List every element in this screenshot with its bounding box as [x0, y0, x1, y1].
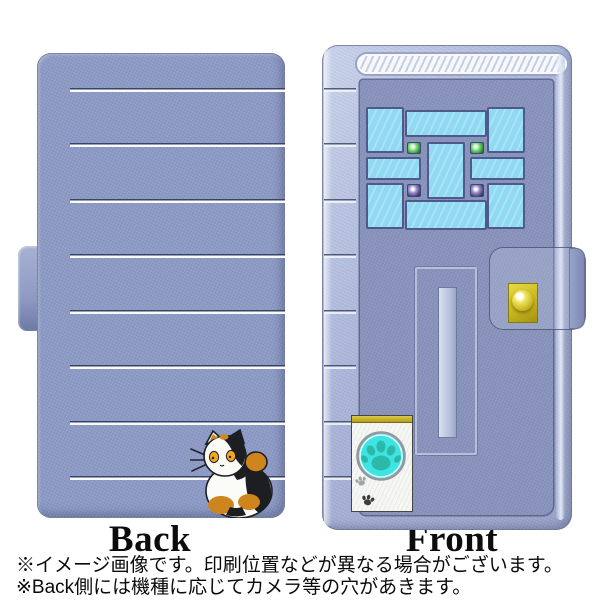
- stripe-line: [70, 365, 285, 369]
- stripe-line: [70, 143, 285, 147]
- paw-steps-icon: [359, 491, 378, 510]
- case-back-cover: [37, 53, 285, 518]
- spine-stripe-line: [324, 365, 356, 369]
- window-pane: [405, 110, 487, 137]
- doorknob-plate: [508, 283, 538, 323]
- stripe-line: [70, 421, 285, 425]
- mail-slot-bar: [438, 287, 457, 438]
- back-view-label: Back: [84, 520, 216, 560]
- green-glass-light: [470, 142, 484, 154]
- window-pane-center: [427, 142, 465, 199]
- window-pane: [470, 157, 525, 180]
- window-pane: [366, 183, 404, 229]
- transom-window: [355, 52, 569, 76]
- spine-stripe-line: [324, 199, 356, 203]
- stripe-line: [70, 254, 285, 258]
- magnetic-flap-end: [569, 248, 585, 329]
- disclaimer-line-1: ※イメージ画像です。印刷位置などが異なる場合がございます。: [16, 555, 600, 576]
- window-pane: [487, 107, 525, 153]
- purple-glass-light: [407, 184, 421, 197]
- green-glass-light: [407, 142, 421, 154]
- window-pane: [366, 107, 404, 153]
- cat-head: [204, 430, 246, 476]
- calico-cat-illustration: [190, 429, 282, 518]
- disclaimer-line-2: ※Back側には機種に応じてカメラ等の穴があきます。: [16, 577, 600, 598]
- purple-glass-light: [470, 184, 484, 197]
- window-pane: [405, 200, 487, 230]
- paw-doorbell-box: [351, 415, 413, 512]
- spine-stripe-line: [324, 143, 356, 147]
- spine-stripe-line: [324, 88, 356, 92]
- case-front-cover: [322, 45, 572, 530]
- product-image-canvas: Back Front ※イメージ画像です。印刷位置などが異なる場合がございます。…: [0, 0, 600, 600]
- stripe-line: [70, 199, 285, 203]
- stripe-line: [70, 310, 285, 314]
- doorknob-icon: [512, 290, 533, 311]
- cat-whiskers: [190, 449, 205, 471]
- spine-stripe-line: [324, 254, 356, 258]
- stripe-line: [70, 88, 285, 92]
- window-pane: [487, 183, 525, 229]
- window-pane: [366, 157, 421, 180]
- spine-highlight: [324, 49, 332, 526]
- spine-stripe-line: [324, 310, 356, 314]
- doorbell-box-gold-strip: [352, 416, 412, 423]
